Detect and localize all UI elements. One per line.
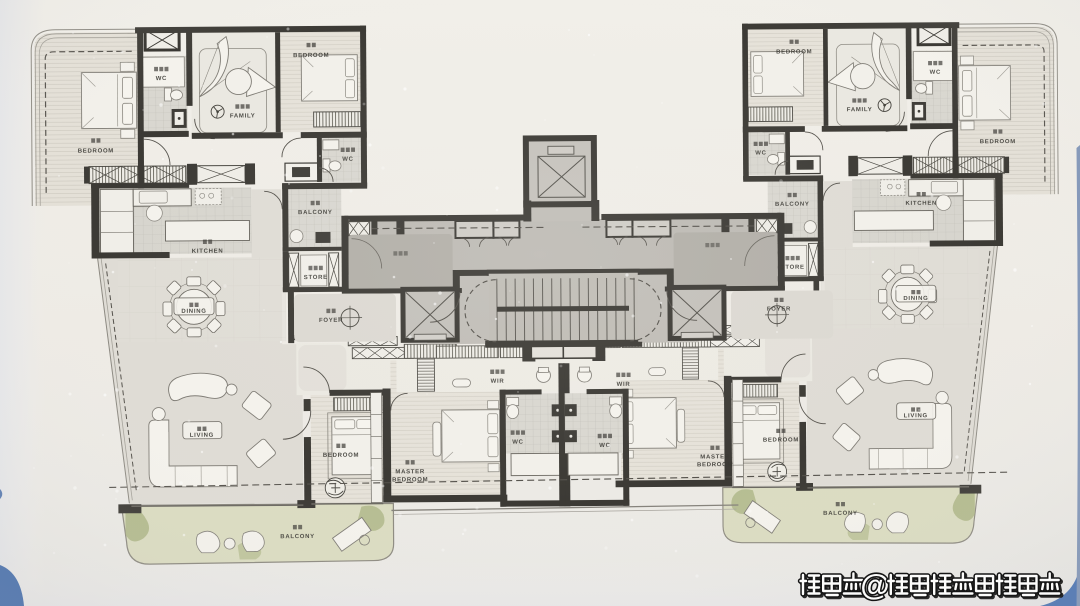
svg-text:BEDROOM: BEDROOM [323,453,359,459]
svg-text:BEDROOM: BEDROOM [392,477,428,483]
svg-text:KITCHEN: KITCHEN [905,201,937,207]
svg-text:BALCONY: BALCONY [280,534,315,540]
svg-text:BALCONY: BALCONY [823,511,858,517]
svg-text:BEDROOM: BEDROOM [78,148,114,154]
svg-text:DINING: DINING [181,309,206,315]
svg-text:FOYER: FOYER [767,307,791,313]
svg-text:STORE: STORE [304,275,328,281]
svg-text:BEDROOM: BEDROOM [293,53,329,59]
svg-text:BEDROOM: BEDROOM [776,49,812,55]
svg-text:@: @ [860,569,889,602]
svg-text:BEDROOM: BEDROOM [763,437,799,443]
svg-text:BEDROOM: BEDROOM [980,139,1016,145]
svg-text:WC: WC [342,157,353,163]
svg-text:LIVING: LIVING [190,433,214,439]
svg-text:FAMILY: FAMILY [847,107,873,113]
svg-text:DINING: DINING [903,296,928,302]
svg-text:STORE: STORE [781,265,805,271]
svg-text:FOYER: FOYER [319,318,343,324]
svg-text:WC: WC [156,76,167,82]
svg-text:WIR: WIR [617,382,631,388]
svg-text:MASTER: MASTER [395,469,425,475]
svg-text:WIR: WIR [491,379,505,385]
svg-text:BEDROOM: BEDROOM [697,462,733,468]
svg-text:LIVING: LIVING [904,413,928,419]
svg-text:BALCONY: BALCONY [298,210,333,216]
svg-text:WC: WC [512,440,523,446]
svg-text:WC: WC [930,70,941,76]
svg-text:WC: WC [755,151,766,157]
svg-text:FAMILY: FAMILY [230,113,256,119]
svg-text:MASTER: MASTER [700,454,730,460]
svg-text:KITCHEN: KITCHEN [192,249,224,255]
svg-text:BALCONY: BALCONY [775,202,810,208]
